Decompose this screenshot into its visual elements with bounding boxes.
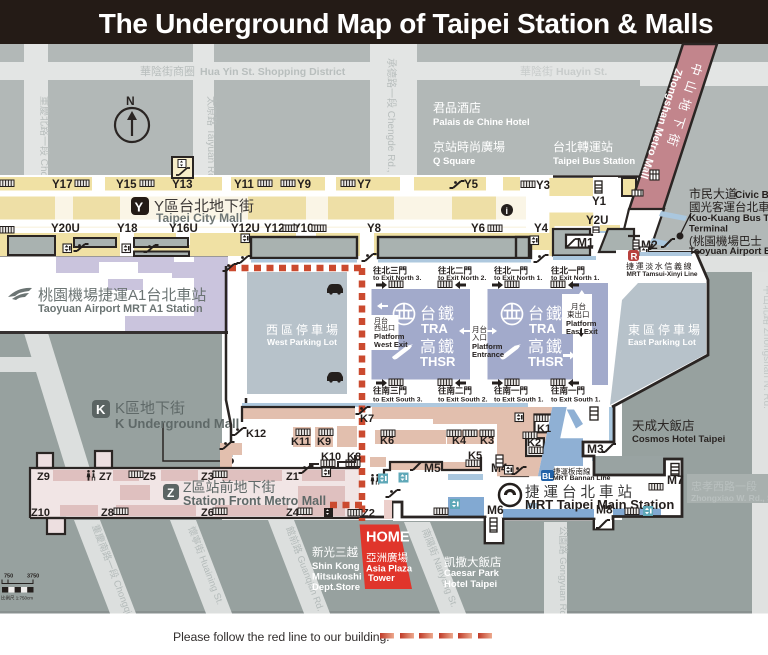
svg-text:N: N [126, 94, 135, 108]
svg-text:THSR: THSR [420, 354, 456, 369]
svg-text:西出口: 西出口 [374, 323, 395, 332]
svg-text:Z6: Z6 [201, 507, 214, 519]
svg-text:Y5: Y5 [464, 179, 479, 191]
svg-text:Y9: Y9 [297, 179, 311, 191]
svg-text:Y2U: Y2U [586, 215, 608, 227]
svg-text:市民大道: 市民大道 [689, 186, 737, 201]
svg-text:M8: M8 [596, 503, 613, 517]
svg-text:R: R [631, 252, 638, 263]
svg-text:Terminal: Terminal [689, 224, 728, 235]
svg-text:M5: M5 [424, 461, 441, 475]
svg-text:往北一門: 往北一門 [494, 266, 528, 276]
svg-text:Q Square: Q Square [433, 156, 475, 167]
svg-text:TRA: TRA [529, 321, 556, 336]
svg-text:Z區站前地下街: Z區站前地下街 [183, 479, 276, 495]
svg-text:東出口: 東出口 [567, 309, 590, 319]
svg-text:Kuo-Kuang Bus Taipe: Kuo-Kuang Bus Taipe [689, 213, 768, 224]
svg-text:Y8: Y8 [367, 223, 382, 235]
svg-text:Y13: Y13 [172, 179, 192, 191]
svg-text:Y17: Y17 [52, 179, 72, 191]
svg-text:Mitsukoshi: Mitsukoshi [312, 572, 362, 583]
svg-text:The Underground Map of Taipei: The Underground Map of Taipei Station & … [99, 8, 713, 39]
svg-text:Y20U: Y20U [51, 223, 80, 235]
svg-text:East Parking Lot: East Parking Lot [628, 337, 696, 347]
svg-text:桃園機場捷運A1台北車站: 桃園機場捷運A1台北車站 [38, 287, 206, 304]
svg-text:THSR: THSR [528, 354, 564, 369]
svg-text:國光客運台北車站: 國光客運台北車站 [689, 200, 768, 214]
svg-text:M7: M7 [667, 473, 684, 487]
svg-text:往北二門: 往北二門 [438, 266, 472, 276]
svg-text:M1: M1 [577, 236, 594, 250]
svg-text:往南二門: 往南二門 [438, 386, 472, 396]
svg-text:Y12U: Y12U [231, 223, 260, 235]
svg-text:Y15: Y15 [116, 179, 137, 191]
svg-text:to Exit South 3.: to Exit South 3. [373, 397, 423, 404]
svg-text:Please follow the red line to: Please follow the red line to our buildi… [173, 630, 390, 644]
svg-text:Y4: Y4 [534, 223, 549, 235]
svg-text:Z7: Z7 [99, 471, 112, 483]
svg-text:Z3: Z3 [201, 471, 214, 483]
svg-text:Station Front Metro Mall: Station Front Metro Mall [183, 494, 326, 508]
svg-text:K11: K11 [291, 436, 311, 448]
svg-text:to Exit South 2.: to Exit South 2. [438, 397, 488, 404]
svg-text:3750: 3750 [27, 574, 39, 580]
svg-text:忠孝西路一段: 忠孝西路一段 [691, 479, 757, 493]
svg-text:月台: 月台 [374, 316, 388, 325]
svg-text:公園路 Gongyuan Rd.: 公園路 Gongyuan Rd. [557, 526, 569, 618]
svg-text:新光三越: 新光三越 [312, 545, 358, 559]
svg-text:to Exit South 1.: to Exit South 1. [494, 397, 544, 404]
svg-text:亞洲廣場: 亞洲廣場 [366, 551, 408, 564]
svg-text:Palais de Chine Hotel: Palais de Chine Hotel [433, 117, 530, 128]
svg-text:Caesar Park: Caesar Park [444, 568, 500, 579]
svg-text:Asia Plaza: Asia Plaza [366, 564, 413, 574]
svg-text:750: 750 [4, 574, 13, 580]
svg-text:Entrance: Entrance [472, 350, 504, 359]
svg-text:Z9: Z9 [37, 471, 50, 483]
svg-text:東區停車場: 東區停車場 [628, 322, 703, 337]
svg-text:往南一門: 往南一門 [551, 386, 585, 396]
svg-text:K9: K9 [317, 436, 331, 448]
svg-text:Y7: Y7 [357, 179, 371, 191]
svg-text:Hua Yin St. Shopping District: Hua Yin St. Shopping District [200, 66, 346, 78]
svg-text:K1: K1 [537, 423, 551, 435]
svg-text:往北一門: 往北一門 [551, 266, 585, 276]
svg-text:Dept.Store: Dept.Store [312, 582, 360, 593]
svg-text:BL: BL [542, 471, 553, 481]
svg-text:Z10: Z10 [31, 507, 50, 519]
svg-text:西區停車場: 西區停車場 [266, 322, 341, 337]
svg-text:凱撒大飯店: 凱撒大飯店 [444, 555, 502, 569]
svg-text:往南一門: 往南一門 [494, 386, 528, 396]
svg-text:Y: Y [135, 200, 144, 215]
svg-text:Z: Z [167, 486, 174, 500]
svg-text:Z8: Z8 [101, 507, 114, 519]
svg-text:M6: M6 [487, 503, 504, 517]
svg-text:i: i [506, 206, 509, 216]
svg-text:to Exit South 1.: to Exit South 1. [551, 397, 601, 404]
svg-text:Tower: Tower [368, 573, 395, 583]
svg-text:Y12: Y12 [264, 223, 284, 235]
svg-text:HOME: HOME [366, 530, 410, 546]
svg-text:K12: K12 [246, 428, 266, 440]
svg-text:天成大飯店: 天成大飯店 [632, 418, 695, 433]
svg-text:K7: K7 [360, 413, 374, 425]
svg-text:K: K [96, 402, 106, 417]
svg-text:Cosmos Hotel Taipei: Cosmos Hotel Taipei [632, 434, 725, 445]
svg-text:Taoyuan Airport Bus: Taoyuan Airport Bus [689, 246, 768, 257]
svg-text:Shin Kong: Shin Kong [312, 561, 360, 572]
svg-text:Zhongxiao W. Rd., Sec.: Zhongxiao W. Rd., Sec. [691, 493, 768, 503]
svg-text:捷運淡水信義線: 捷運淡水信義線 [626, 261, 693, 271]
svg-text:MRT Bannan Line: MRT Bannan Line [553, 475, 611, 482]
svg-text:中山北路 Zhongshan N. Rd.: 中山北路 Zhongshan N. Rd. [761, 285, 768, 409]
svg-text:West Parking Lot: West Parking Lot [267, 337, 337, 347]
svg-text:M3: M3 [587, 442, 604, 456]
svg-text:Y1: Y1 [592, 196, 607, 208]
svg-text:Y6: Y6 [471, 223, 485, 235]
svg-text:比例尺 1:750cm: 比例尺 1:750cm [1, 595, 33, 602]
svg-text:Y16U: Y16U [169, 223, 198, 235]
svg-text:往南三門: 往南三門 [373, 386, 407, 396]
svg-text:Z1: Z1 [286, 471, 299, 483]
svg-text:Y11: Y11 [234, 179, 254, 191]
svg-text:Y18: Y18 [117, 223, 138, 235]
svg-text:往北三門: 往北三門 [373, 266, 407, 276]
svg-text:入口: 入口 [472, 333, 487, 342]
svg-text:京站時尚廣場: 京站時尚廣場 [433, 140, 505, 154]
svg-text:Y3: Y3 [536, 180, 550, 192]
svg-text:MRT Tamsui-Xinyi Line: MRT Tamsui-Xinyi Line [627, 271, 698, 278]
svg-text:TRA: TRA [421, 321, 448, 336]
svg-text:K Underground Mall: K Underground Mall [115, 416, 239, 431]
svg-text:太原路 Taiyuan Rd.: 太原路 Taiyuan Rd. [205, 96, 218, 182]
svg-text:君品酒店: 君品酒店 [433, 101, 481, 115]
svg-text:Hotel Taipei: Hotel Taipei [444, 579, 497, 590]
svg-text:Taoyuan Airport MRT A1 Station: Taoyuan Airport MRT A1 Station [38, 303, 203, 315]
svg-text:Taipei Bus Station: Taipei Bus Station [553, 156, 635, 167]
svg-text:華陰街商圈: 華陰街商圈 [140, 64, 195, 78]
svg-text:華陰街: 華陰街 [520, 64, 553, 78]
svg-text:Huayin St.: Huayin St. [556, 66, 607, 78]
svg-text:台北轉運站: 台北轉運站 [553, 139, 613, 154]
svg-text:K區地下街: K區地下街 [115, 400, 185, 417]
svg-text:Z5: Z5 [143, 471, 156, 483]
svg-text:Civic Blvd: Civic Blvd [735, 190, 768, 201]
